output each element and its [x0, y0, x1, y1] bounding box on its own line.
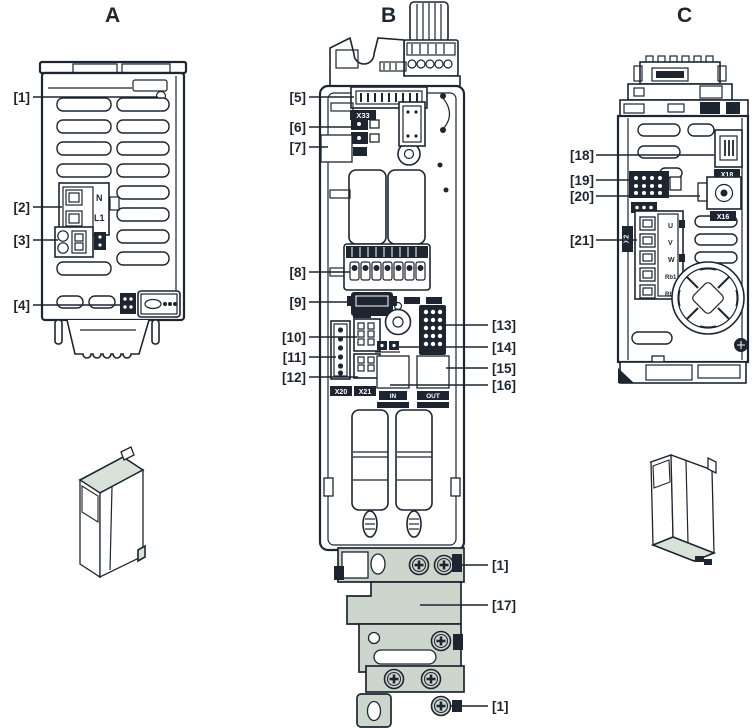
callout-a-1: [1] [2, 89, 30, 106]
label-field [321, 135, 352, 162]
view-a-device: N L1 [40, 62, 186, 358]
screw-icon [385, 670, 404, 689]
callout-b-1-top: [1] [492, 557, 532, 574]
callout-b-14: [14] [492, 339, 532, 356]
cable-terminal [404, 40, 458, 76]
port-label-out: OUT [426, 393, 440, 400]
connector-label-x16: X16 [717, 214, 730, 221]
connector-label-x21: X21 [359, 389, 372, 396]
screw-icon [435, 556, 454, 575]
terminal-label-n: N [96, 193, 103, 203]
callout-b-5: [5] [270, 89, 306, 106]
callout-c-21: [21] [560, 232, 594, 249]
cover-box-a [80, 447, 145, 577]
shield-plate [347, 582, 461, 624]
screw-icon [432, 632, 451, 651]
callout-b-13: [13] [492, 317, 532, 334]
callout-c-18: [18] [560, 147, 594, 164]
callout-b-10: [10] [270, 329, 306, 346]
heatsink [55, 320, 159, 358]
callout-b-9: [9] [270, 294, 306, 311]
view-title-b: B [381, 4, 396, 28]
terminal-label-l1: L1 [94, 213, 105, 223]
pin-label-w: W [668, 257, 675, 264]
connector-x18: X18 [714, 130, 742, 179]
view-title-a: A [105, 4, 120, 28]
power-terminal-row [344, 244, 430, 290]
screw-icon [432, 697, 451, 716]
callout-b-1-bottom: [1] [492, 698, 532, 715]
callout-a-4: [4] [2, 297, 30, 314]
mounting-assembly [334, 548, 464, 727]
callout-b-17: [17] [492, 597, 532, 614]
callout-b-11: [11] [270, 349, 306, 366]
connector-11 [331, 321, 350, 379]
callout-b-16: [16] [492, 377, 532, 394]
connector-bottom [120, 291, 180, 317]
connector-label-x2: X2 [624, 235, 631, 244]
pin-label-rb1: Rb1 [665, 275, 677, 281]
callout-a-2: [2] [2, 199, 30, 216]
connector-upper-right [399, 102, 425, 146]
port-label-in: IN [390, 393, 397, 400]
pin-label-u: U [668, 223, 673, 230]
top-stack [620, 56, 748, 116]
connector-12 [354, 354, 380, 378]
pin-label-v: V [668, 240, 673, 247]
callout-c-20: [20] [560, 188, 594, 205]
view-b-device: X33 [320, 2, 464, 727]
callout-c-19: [19] [560, 172, 594, 189]
technical-diagram: N L1 [0, 0, 756, 728]
callout-b-12: [12] [270, 369, 306, 386]
option-module-right [417, 356, 449, 388]
callout-b-15: [15] [492, 360, 532, 377]
option-module-left [377, 356, 409, 388]
callout-b-7: [7] [270, 139, 306, 156]
connector-label-x20: X20 [335, 389, 348, 396]
screw-icon [422, 670, 441, 689]
callout-a-3: [3] [2, 232, 30, 249]
callout-b-8: [8] [270, 264, 306, 281]
screw-icon [410, 556, 429, 575]
channel [388, 170, 425, 244]
view-c-device: X18 X16 X2 [618, 56, 748, 383]
diagram-artwork: N L1 [0, 0, 756, 728]
cover-box-c [651, 455, 716, 565]
channel [349, 170, 386, 244]
callout-b-6: [6] [270, 119, 306, 136]
view-title-c: C [677, 4, 692, 28]
knockout [386, 310, 411, 335]
cable [410, 2, 448, 42]
